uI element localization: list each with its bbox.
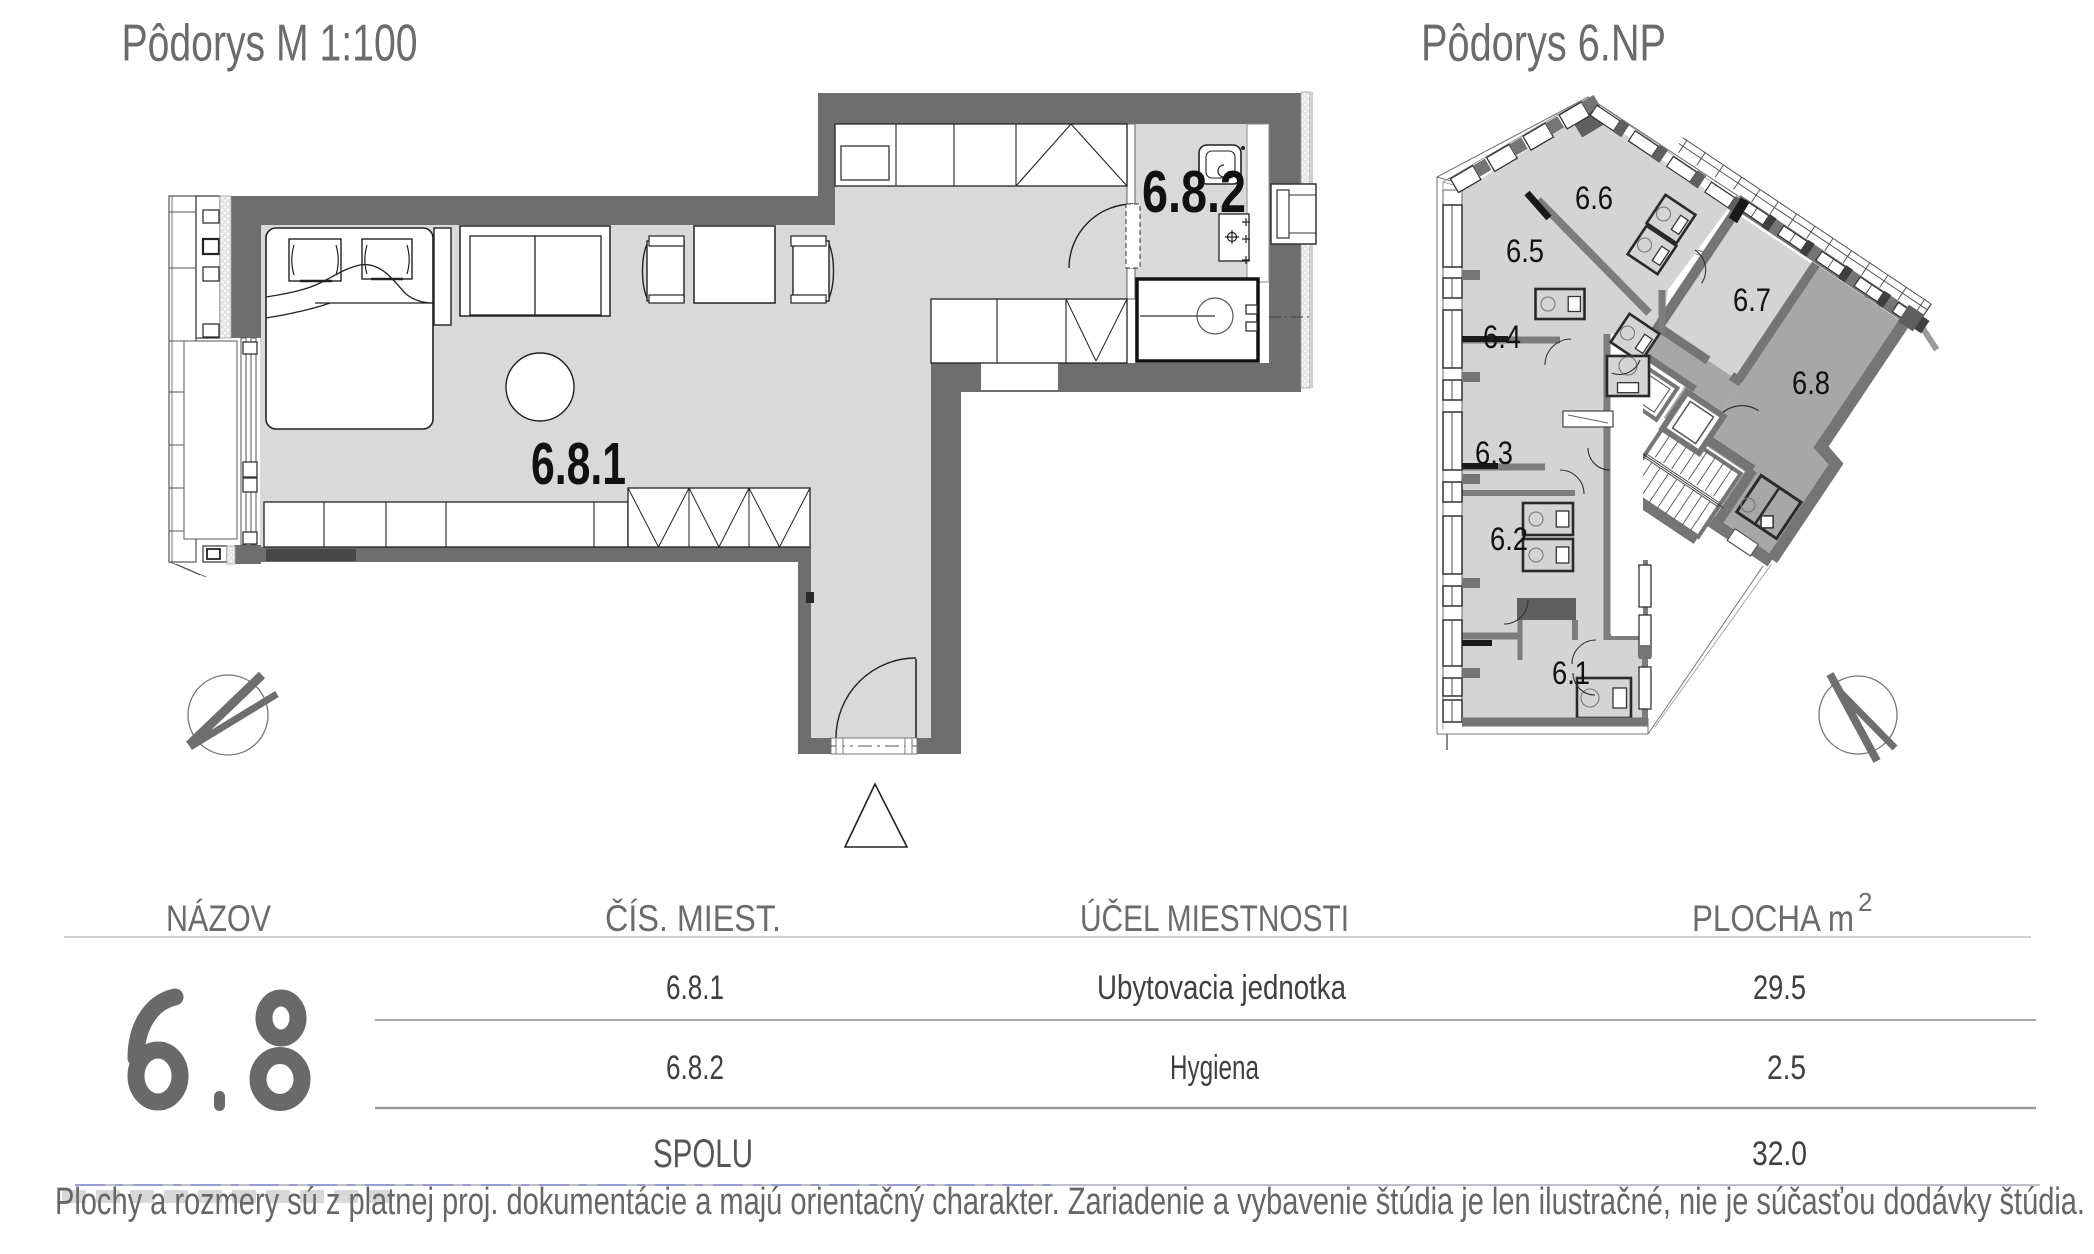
svg-text:6.8.1: 6.8.1 — [531, 431, 626, 497]
svg-text:PLOCHA m: PLOCHA m — [1692, 898, 1854, 939]
svg-text:NÁZOV: NÁZOV — [166, 898, 271, 939]
svg-text:6.6: 6.6 — [1575, 180, 1613, 216]
svg-text:Ubytovacia jednotka: Ubytovacia jednotka — [1097, 969, 1346, 1007]
svg-text:SPOLU: SPOLU — [653, 1132, 753, 1176]
svg-text:29.5: 29.5 — [1753, 969, 1806, 1007]
svg-text:6.5: 6.5 — [1506, 233, 1544, 269]
svg-text:2.5: 2.5 — [1767, 1049, 1806, 1087]
svg-text:ÚČEL MIESTNOSTI: ÚČEL MIESTNOSTI — [1080, 898, 1349, 939]
svg-text:6.3: 6.3 — [1475, 435, 1513, 471]
svg-text:6.8.2: 6.8.2 — [1142, 159, 1246, 225]
svg-text:6.8.2: 6.8.2 — [666, 1049, 724, 1087]
svg-text:6.8.1: 6.8.1 — [666, 969, 724, 1007]
svg-text:32.0: 32.0 — [1752, 1135, 1807, 1173]
svg-text:Pôdorys M 1:100: Pôdorys M 1:100 — [122, 15, 418, 73]
svg-text:Hygiena: Hygiena — [1170, 1049, 1259, 1087]
svg-text:6.8: 6.8 — [1792, 365, 1830, 401]
svg-text:Plochy a rozmery sú z platnej: Plochy a rozmery sú z platnej proj. doku… — [55, 1181, 2085, 1223]
svg-text:6.7: 6.7 — [1733, 282, 1771, 318]
svg-text:Pôdorys 6.NP: Pôdorys 6.NP — [1421, 15, 1666, 73]
svg-text:6.1: 6.1 — [1552, 655, 1590, 691]
svg-text:ČÍS. MIEST.: ČÍS. MIEST. — [605, 898, 781, 939]
svg-text:6.4: 6.4 — [1483, 319, 1521, 355]
svg-text:6.2: 6.2 — [1490, 521, 1528, 557]
svg-text:2: 2 — [1858, 887, 1872, 917]
